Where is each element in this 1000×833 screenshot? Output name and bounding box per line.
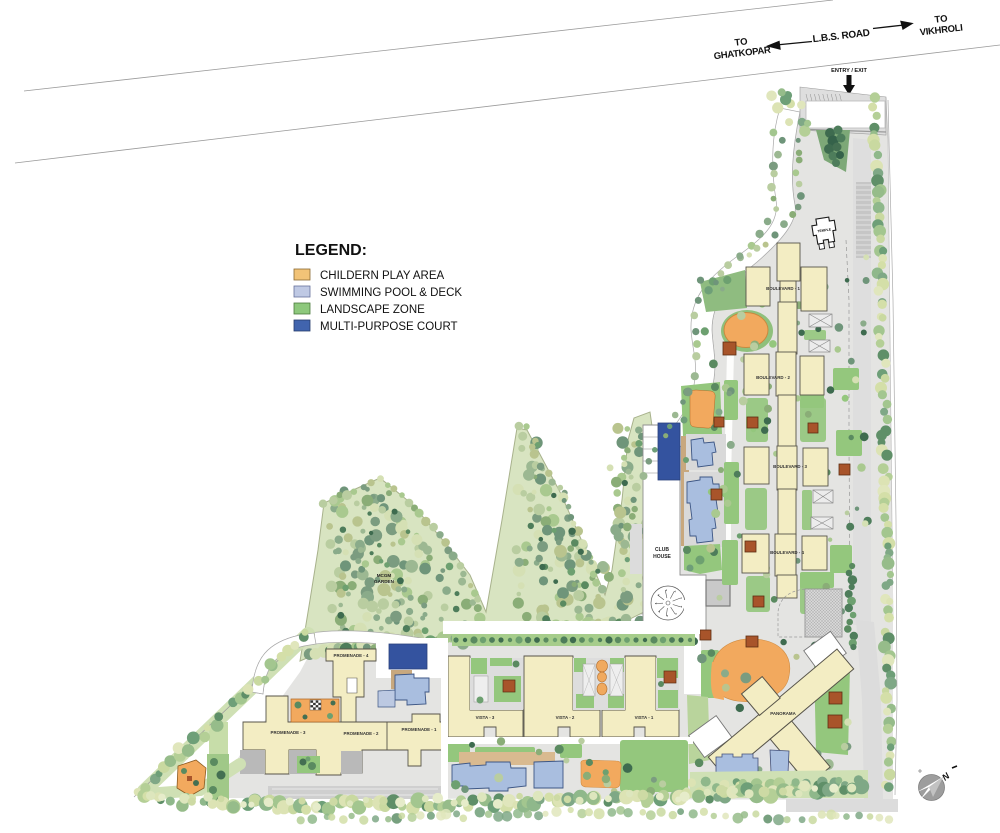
svg-text:BOULEVARD - 3: BOULEVARD - 3 <box>773 464 807 469</box>
svg-text:LANDSCAPE ZONE: LANDSCAPE ZONE <box>320 304 425 316</box>
svg-text:HOUSE: HOUSE <box>653 554 671 560</box>
svg-text:PANORAMA: PANORAMA <box>770 711 796 716</box>
svg-text:MCGM: MCGM <box>377 573 392 578</box>
svg-text:VISTA - 2: VISTA - 2 <box>556 715 575 720</box>
svg-text:SWIMMING POOL & DECK: SWIMMING POOL & DECK <box>320 287 462 299</box>
svg-text:CHILDERN PLAY AREA: CHILDERN PLAY AREA <box>320 270 445 282</box>
svg-text:PROMENADE - 2: PROMENADE - 2 <box>344 731 379 736</box>
svg-text:VISTA - 3: VISTA - 3 <box>476 715 495 720</box>
svg-text:BOULEVARD - 4: BOULEVARD - 4 <box>770 550 804 555</box>
svg-text:ENTRY / EXIT: ENTRY / EXIT <box>831 68 867 74</box>
svg-text:VISTA - 1: VISTA - 1 <box>635 715 654 720</box>
svg-text:GARDEN: GARDEN <box>374 579 395 584</box>
svg-text:LEGEND:: LEGEND: <box>295 242 367 259</box>
svg-text:BOULEVARD - 1: BOULEVARD - 1 <box>766 286 800 291</box>
svg-text:PROMENADE - 1: PROMENADE - 1 <box>402 727 437 732</box>
svg-text:PROMENADE - 4: PROMENADE - 4 <box>334 653 369 658</box>
svg-text:CLUB: CLUB <box>655 547 669 553</box>
svg-text:PROMENADE - 3: PROMENADE - 3 <box>271 730 306 735</box>
svg-text:BOULEVARD - 2: BOULEVARD - 2 <box>756 375 790 380</box>
svg-text:MULTI-PURPOSE COURT: MULTI-PURPOSE COURT <box>320 321 458 333</box>
